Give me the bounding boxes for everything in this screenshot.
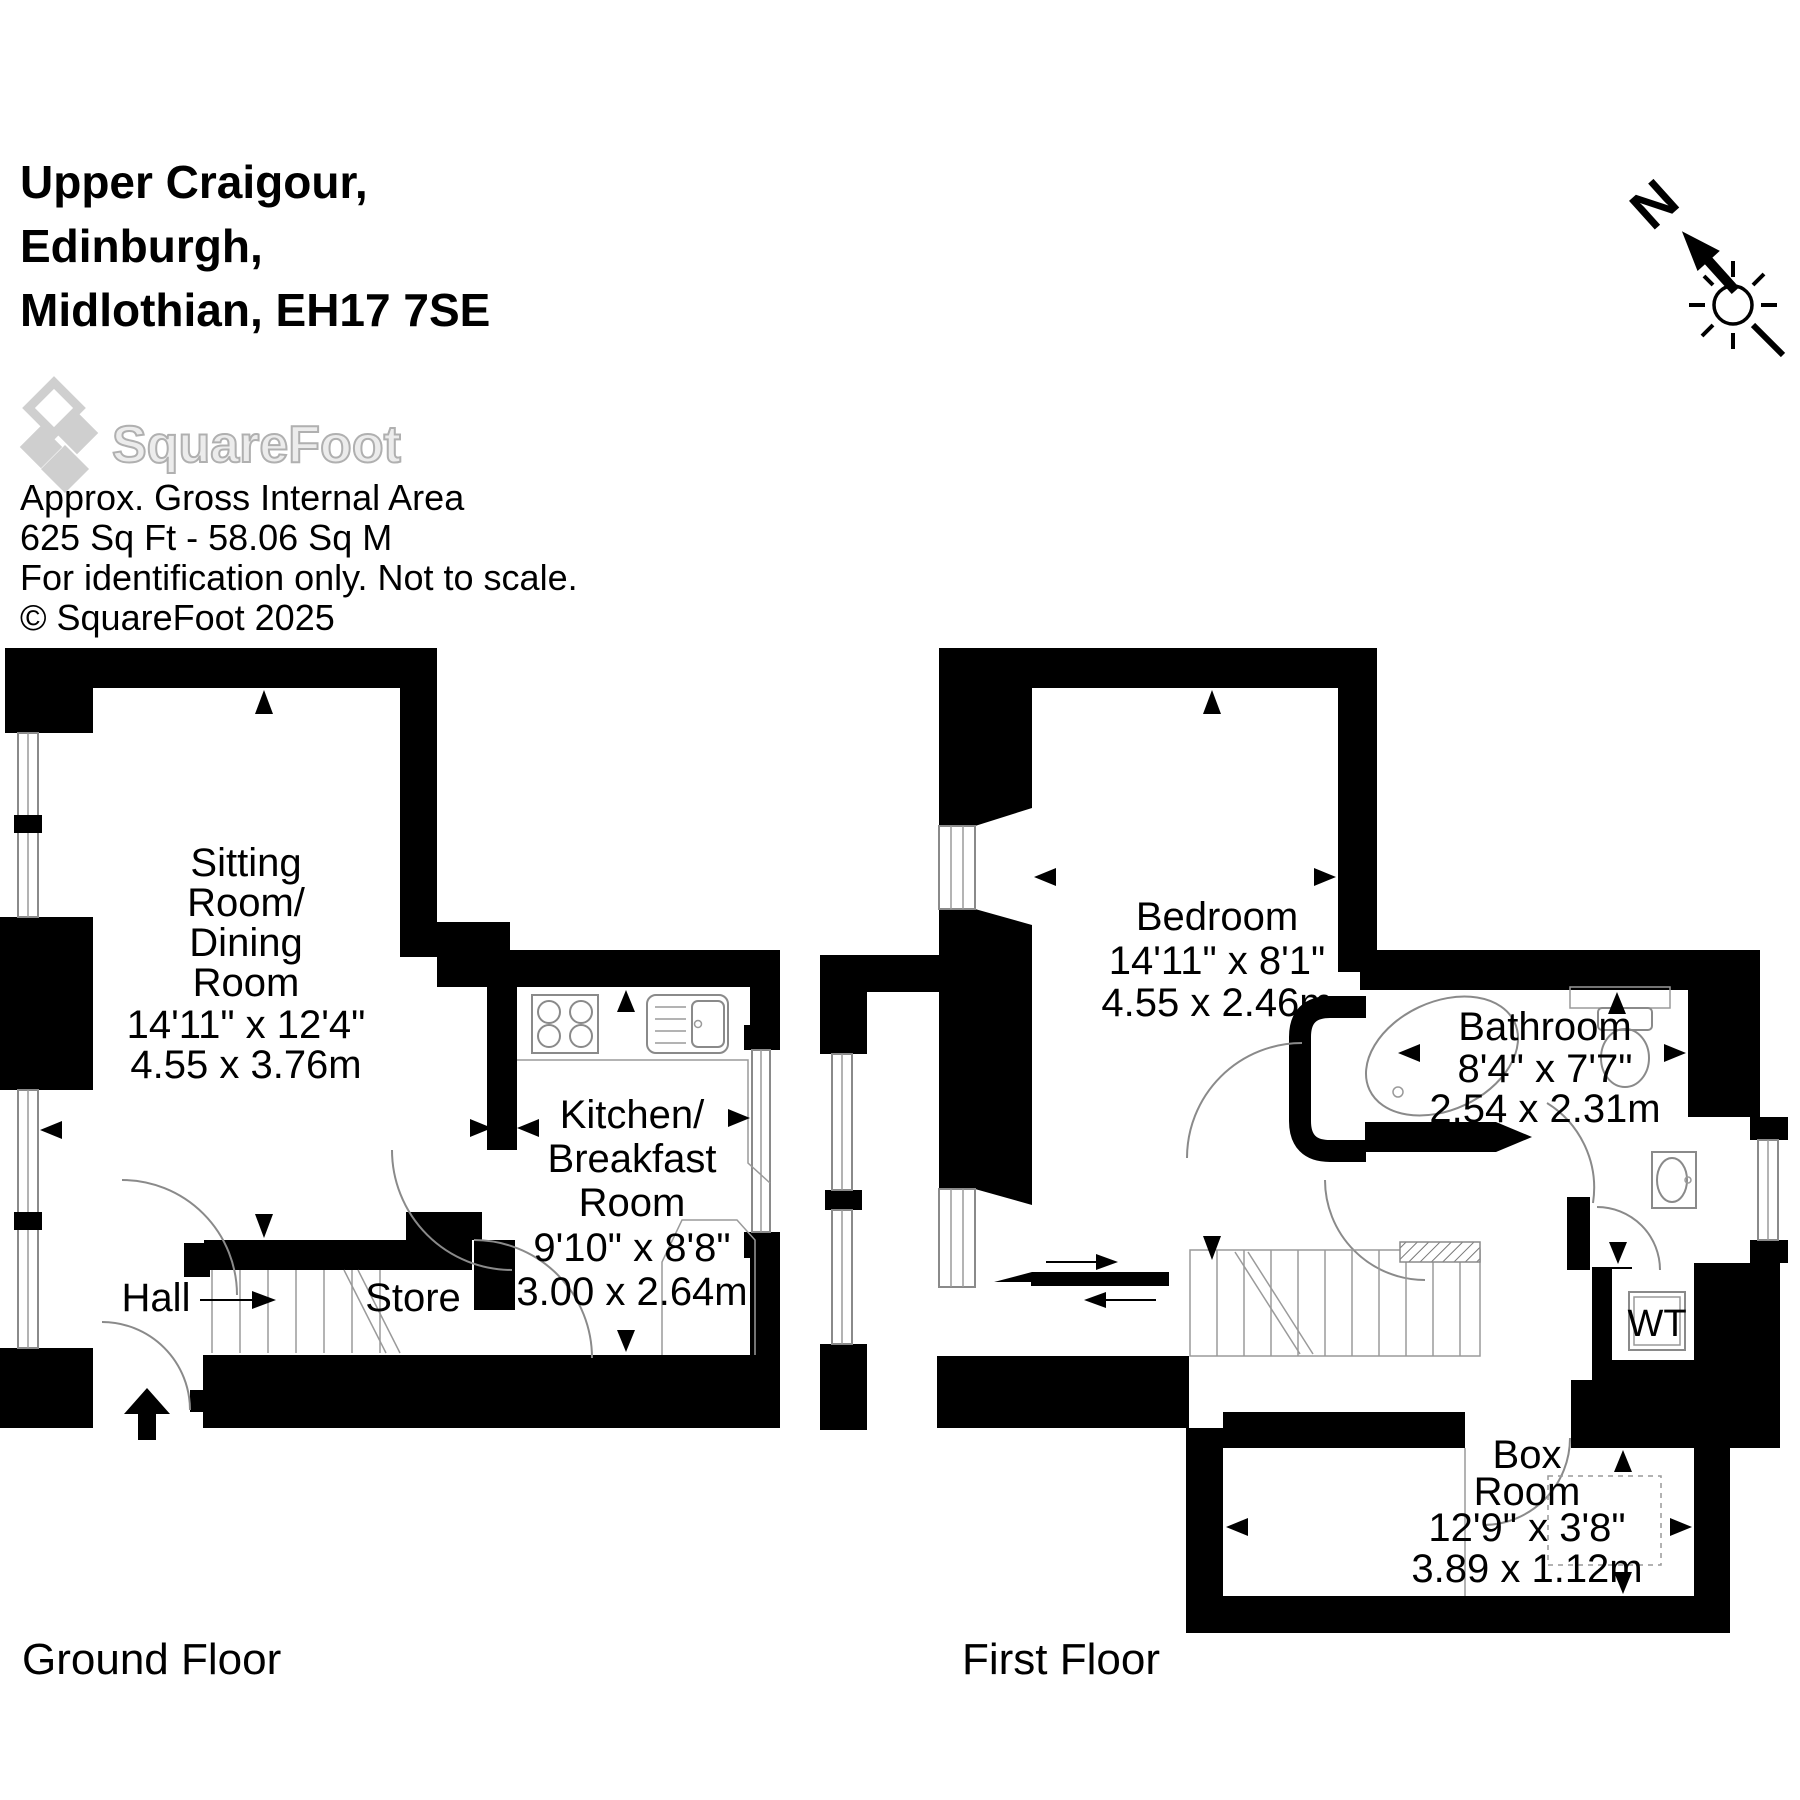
dimension-arrow-icon <box>1226 1518 1248 1536</box>
dimension-arrow-icon <box>728 1109 750 1127</box>
first-floor-walls <box>820 648 1788 1633</box>
room-dimensions-metric: 3.89 x 1.12m <box>1411 1547 1642 1591</box>
dimension-arrow-icon <box>1670 1518 1692 1536</box>
window <box>14 733 42 917</box>
dimension-arrow-icon <box>1203 690 1221 714</box>
room-dimensions-metric: 4.55 x 2.46m <box>1101 981 1332 1025</box>
dimension-arrow-icon <box>617 1330 635 1352</box>
compass-north-label: N <box>1618 167 1690 241</box>
dimension-arrow-icon <box>1034 868 1056 886</box>
basin-icon <box>1652 1152 1696 1208</box>
dimension-arrow-icon <box>1604 1242 1632 1268</box>
window <box>14 1090 42 1348</box>
sitting-room-label: Sitting Room/ Dining Room 14'11" x 12'4"… <box>127 841 366 1087</box>
sink-icon <box>647 995 728 1053</box>
wt-label: WT <box>1627 1303 1686 1345</box>
sun-icon <box>1689 261 1783 355</box>
room-dimensions-metric: 4.55 x 3.76m <box>130 1043 361 1087</box>
dimension-arrow-icon <box>1614 1450 1632 1472</box>
dimension-arrow-icon <box>40 1121 62 1139</box>
entrance-arrow-icon <box>124 1388 170 1440</box>
room-name: Sitting <box>190 841 301 885</box>
room-dimensions: 9'10" x 8'8" <box>533 1226 730 1270</box>
floorplan-page: Upper Craigour, Edinburgh, Midlothian, E… <box>0 0 1800 1800</box>
dimension-arrow-icon <box>1203 1236 1221 1260</box>
room-name: Breakfast <box>548 1137 717 1181</box>
floorplan-drawing: SquareFoot N <box>0 0 1800 1800</box>
room-dimensions: 14'11" x 8'1" <box>1109 939 1325 983</box>
room-name: Room/ <box>187 881 306 925</box>
room-name: Bedroom <box>1136 895 1298 939</box>
hob-icon <box>532 995 598 1053</box>
bathroom-label: Bathroom 8'4" x 7'7" 2.54 x 2.31m <box>1429 1005 1660 1131</box>
dimension-arrow-icon <box>255 690 273 714</box>
north-arrow-icon <box>1671 221 1747 301</box>
dimension-arrow-icon <box>1664 1044 1686 1062</box>
window <box>1758 1140 1778 1240</box>
kitchen-label: Kitchen/ Breakfast Room 9'10" x 8'8" 3.0… <box>516 1093 747 1314</box>
window <box>832 1210 852 1344</box>
compass: N <box>1618 167 1783 355</box>
ground-floor-title: Ground Floor <box>22 1635 281 1684</box>
room-name: Room <box>579 1181 686 1225</box>
hall-label: Hall <box>122 1276 191 1320</box>
dimension-arrow-icon <box>255 1214 273 1238</box>
bay-window <box>939 808 1032 925</box>
squarefoot-logo-icon: SquareFoot <box>20 383 401 493</box>
store-label: Store <box>365 1276 461 1320</box>
bedroom-label: Bedroom 14'11" x 8'1" 4.55 x 2.46m <box>1101 895 1332 1025</box>
window <box>832 1054 852 1190</box>
room-name: Kitchen/ <box>560 1093 705 1137</box>
dimension-arrow-icon <box>1398 1044 1420 1062</box>
door-arc <box>1325 1180 1425 1280</box>
squarefoot-wordmark: SquareFoot <box>112 416 401 474</box>
box-room-label: Box Room 12'9" x 3'8" 3.89 x 1.12m <box>1411 1433 1642 1591</box>
first-floor-title: First Floor <box>962 1635 1160 1684</box>
first-floor-stairs <box>1046 1242 1480 1356</box>
room-dimensions: 14'11" x 12'4" <box>127 1003 366 1047</box>
room-dimensions: 12'9" x 3'8" <box>1428 1506 1625 1550</box>
room-name: Room <box>193 961 300 1005</box>
room-name: Dining <box>189 921 302 965</box>
ground-floor-plan: Sitting Room/ Dining Room 14'11" x 12'4"… <box>0 648 780 1684</box>
room-dimensions-metric: 2.54 x 2.31m <box>1429 1087 1660 1131</box>
first-floor-plan: WT <box>820 648 1788 1684</box>
dimension-arrow-icon <box>617 990 635 1012</box>
room-dimensions: 8'4" x 7'7" <box>1458 1047 1633 1091</box>
room-dimensions-metric: 3.00 x 2.64m <box>516 1270 747 1314</box>
dimension-arrow-icon <box>517 1119 539 1137</box>
dimension-arrow-icon <box>1314 868 1336 886</box>
wt-cupboard: WT <box>1627 1292 1686 1350</box>
bay-window <box>939 1189 1032 1287</box>
room-name: Bathroom <box>1458 1005 1631 1049</box>
door-arc <box>1597 1207 1660 1270</box>
window <box>752 1050 770 1232</box>
door-arc <box>1187 1043 1302 1158</box>
stair-landing-hatch <box>1400 1242 1480 1262</box>
